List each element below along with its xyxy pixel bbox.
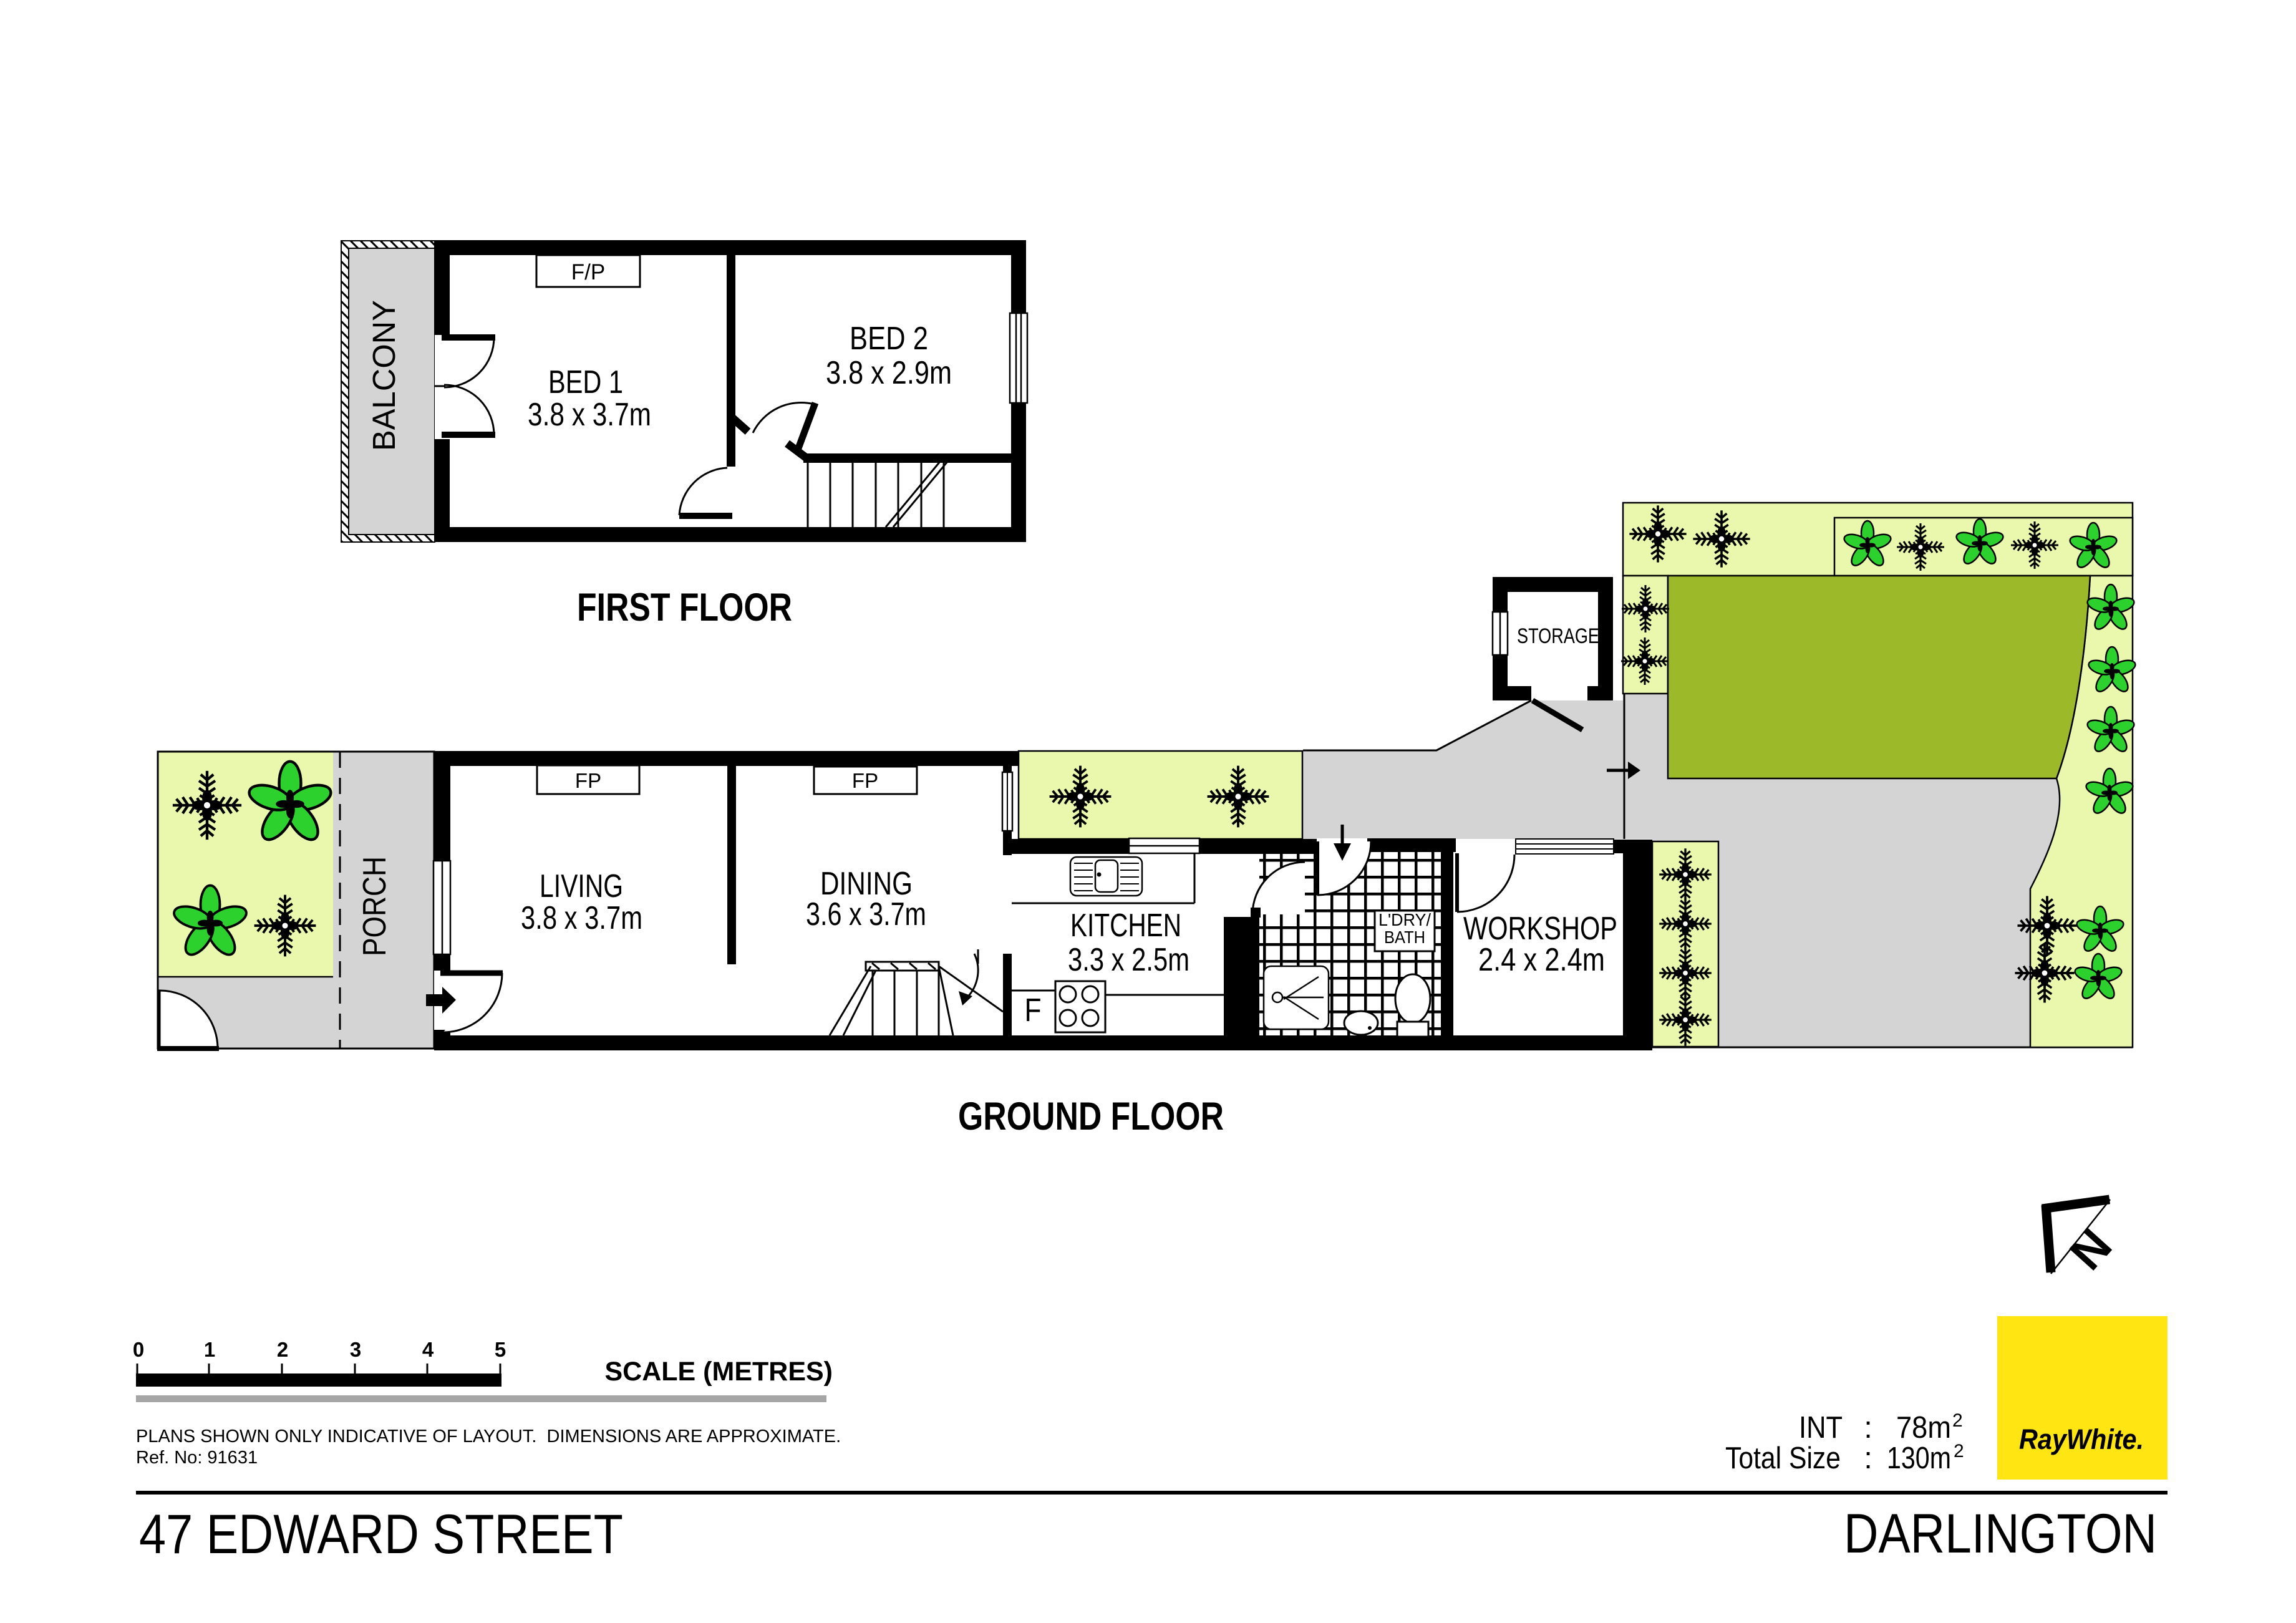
svg-text:DARLINGTON: DARLINGTON (1844, 1502, 2157, 1564)
svg-text:GROUND FLOOR: GROUND FLOOR (958, 1095, 1224, 1138)
svg-text:2: 2 (1954, 1441, 1964, 1461)
svg-text:SCALE (METRES): SCALE (METRES) (605, 1357, 833, 1387)
svg-text:LIVING: LIVING (540, 868, 623, 904)
svg-text:3.3 x 2.5m: 3.3 x 2.5m (1068, 942, 1189, 978)
svg-text:FP: FP (575, 769, 601, 792)
svg-text:2.4 x 2.4m: 2.4 x 2.4m (1478, 942, 1605, 978)
svg-text:RayWhite.: RayWhite. (2019, 1423, 2144, 1455)
svg-text:2: 2 (1952, 1410, 1963, 1431)
svg-text:PORCH: PORCH (357, 856, 393, 956)
svg-text::: : (1864, 1441, 1872, 1475)
svg-text:FP: FP (852, 769, 878, 792)
svg-text:STORAGE: STORAGE (1517, 624, 1599, 648)
svg-text:F/P: F/P (571, 260, 605, 284)
svg-text:3.8 x 3.7m: 3.8 x 3.7m (528, 397, 651, 433)
svg-text:FIRST FLOOR: FIRST FLOOR (577, 586, 792, 629)
svg-text:BALCONY: BALCONY (366, 300, 402, 451)
svg-text:3.6 x 3.7m: 3.6 x 3.7m (806, 896, 926, 933)
svg-text:0: 0 (133, 1338, 144, 1361)
svg-text:KITCHEN: KITCHEN (1070, 908, 1181, 944)
svg-text:2: 2 (277, 1338, 288, 1361)
svg-text:3.8 x 2.9m: 3.8 x 2.9m (826, 355, 952, 391)
svg-text::: : (1864, 1411, 1872, 1445)
svg-text:4: 4 (422, 1338, 434, 1361)
svg-text:5: 5 (495, 1338, 506, 1361)
svg-text:F: F (1025, 992, 1042, 1029)
svg-text:130m: 130m (1887, 1441, 1951, 1475)
svg-text:78m: 78m (1896, 1411, 1951, 1445)
svg-text:BED 1: BED 1 (548, 364, 623, 400)
svg-text:PLANS SHOWN ONLY INDICATIVE OF: PLANS SHOWN ONLY INDICATIVE OF LAYOUT. D… (136, 1427, 841, 1446)
svg-text:BATH: BATH (1384, 928, 1425, 947)
svg-text:Total Size: Total Size (1725, 1441, 1841, 1475)
svg-text:Ref. No: 91631: Ref. No: 91631 (136, 1448, 258, 1468)
svg-text:L'DRY/: L'DRY/ (1378, 910, 1431, 929)
svg-text:BED 2: BED 2 (850, 321, 928, 357)
svg-text:3.8 x 3.7m: 3.8 x 3.7m (521, 900, 642, 936)
svg-text:3: 3 (350, 1338, 361, 1361)
svg-text:47 EDWARD STREET: 47 EDWARD STREET (139, 1503, 623, 1565)
svg-text:INT: INT (1799, 1411, 1843, 1445)
svg-text:1: 1 (204, 1338, 215, 1361)
